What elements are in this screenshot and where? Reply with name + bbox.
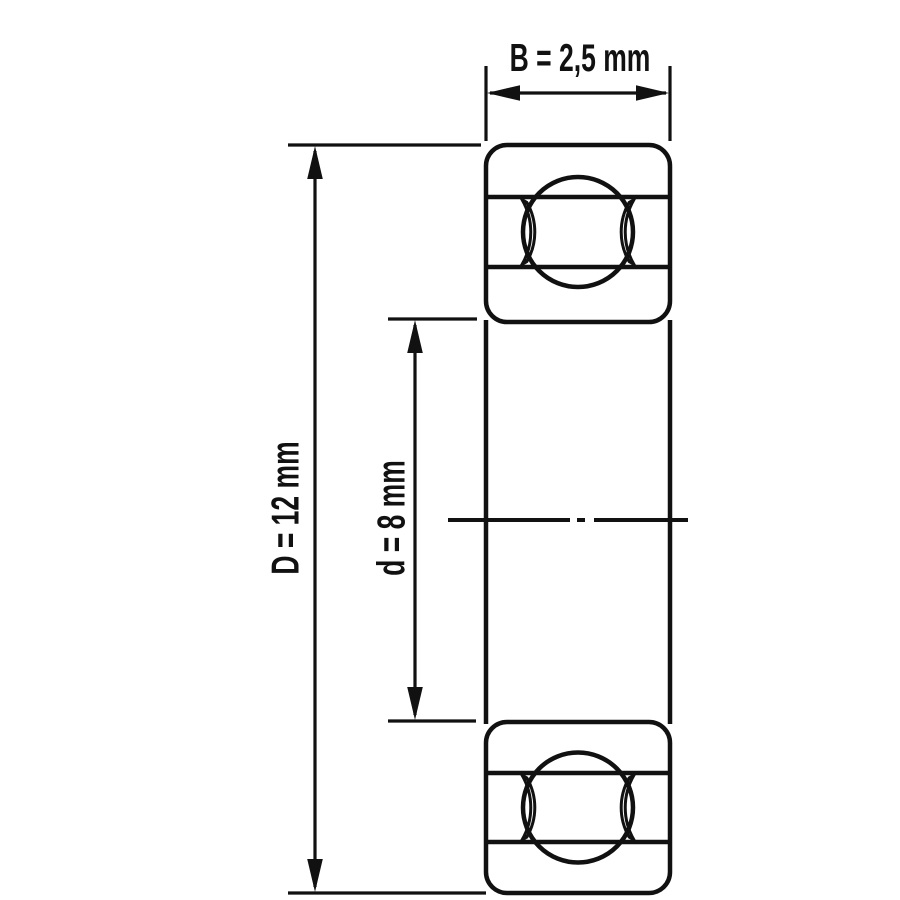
bearing-dimension-drawing: B = 2,5 mm D = 12 mm d = 8 mm: [0, 0, 900, 900]
top-raceway-gap: [489, 199, 668, 264]
outer-diameter-arrow-top-icon: [307, 146, 323, 179]
bore-diameter-dimension-label: d = 8 mm: [370, 460, 413, 576]
outer-diameter-arrow-bottom-icon: [307, 859, 323, 892]
width-dimension: B = 2,5 mm: [486, 37, 670, 141]
bore-diameter-arrow-bottom-icon: [407, 687, 423, 720]
bearing-cross-section: [448, 145, 688, 893]
width-arrow-right-icon: [636, 85, 669, 101]
bore-diameter-arrow-top-icon: [407, 320, 423, 353]
outer-diameter-dimension-label: D = 12 mm: [264, 441, 307, 574]
width-dimension-label: B = 2,5 mm: [510, 37, 651, 80]
bottom-raceway-gap: [489, 775, 668, 839]
width-arrow-left-icon: [487, 85, 520, 101]
bottom-ring-section: [486, 722, 670, 893]
bearing-technical-drawing: B = 2,5 mm D = 12 mm d = 8 mm: [0, 0, 900, 900]
top-ring-section: [486, 145, 670, 322]
